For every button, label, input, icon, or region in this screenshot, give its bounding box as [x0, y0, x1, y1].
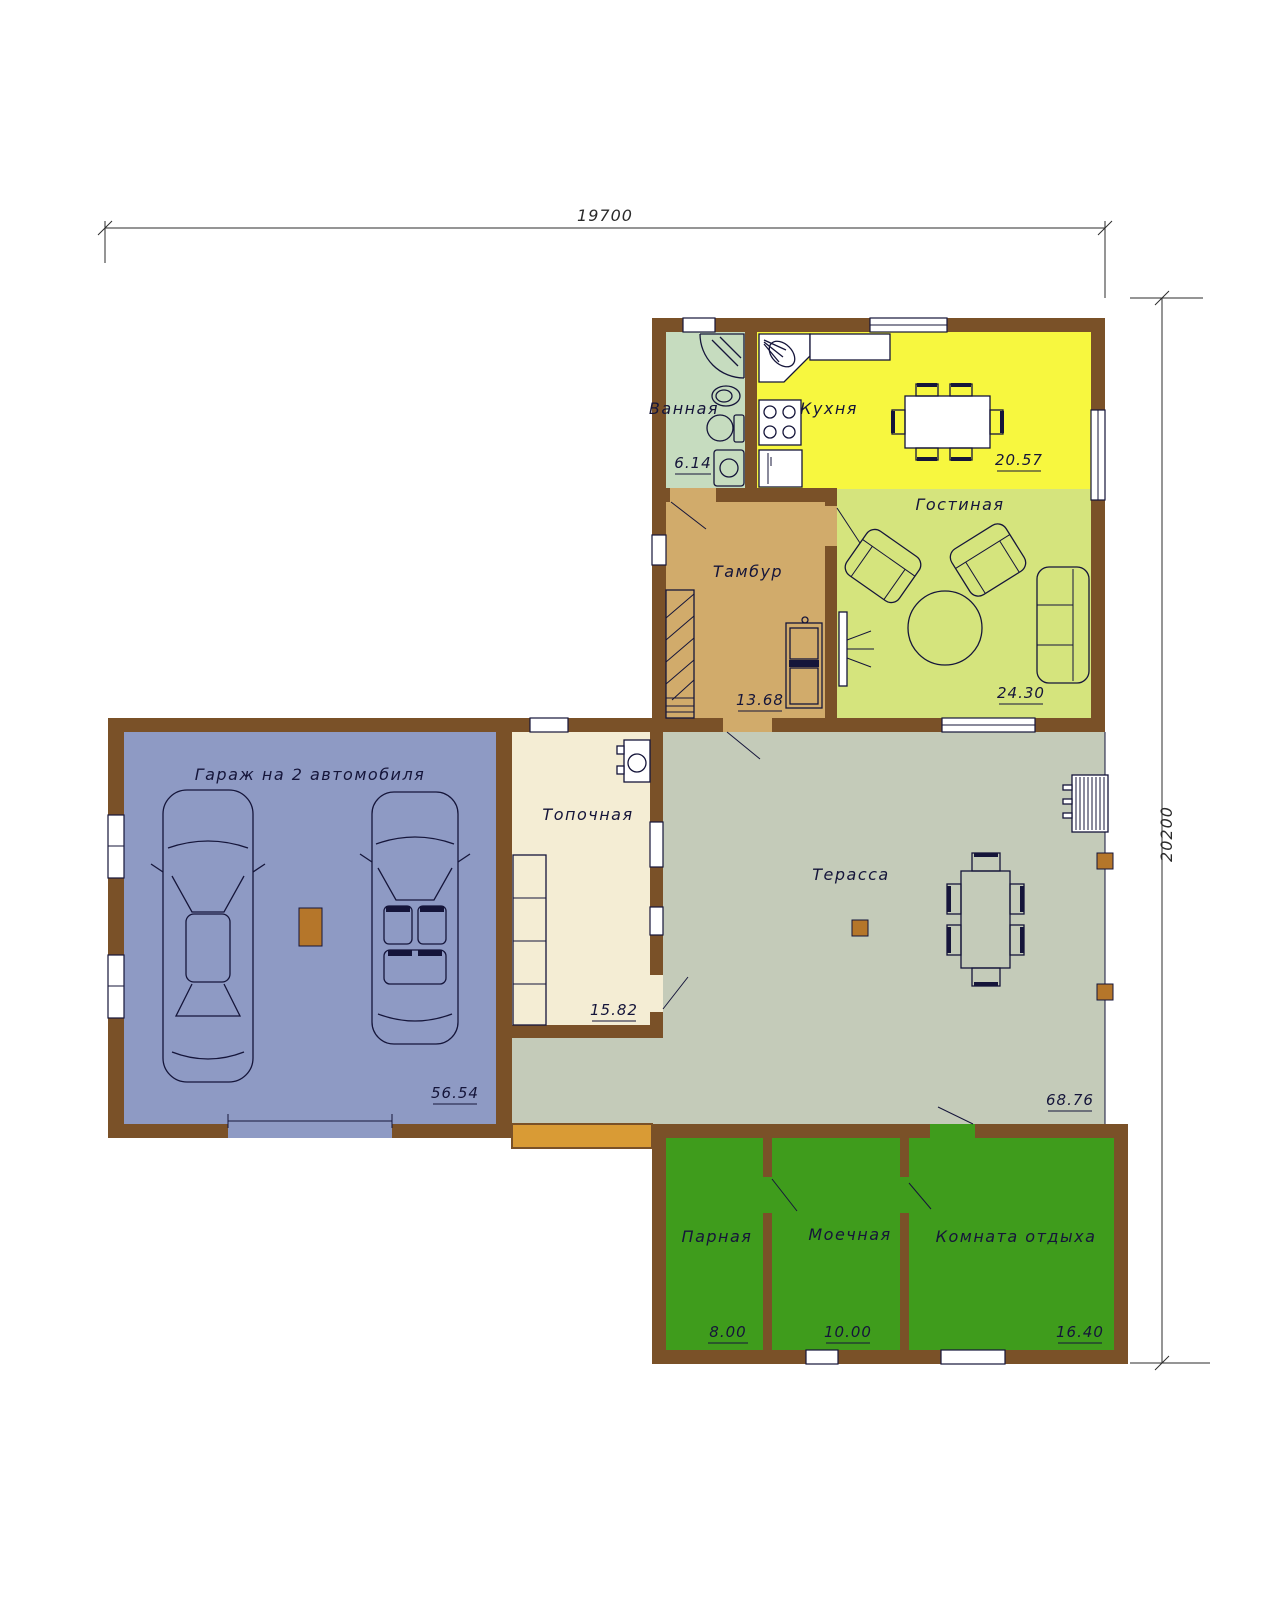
dimension-top: 19700	[98, 206, 1112, 298]
floor-plan-canvas: 19700 20200 Ванная 6.14 Кухня 20.57 Гост…	[0, 0, 1280, 1600]
room-washing-floor	[772, 1138, 900, 1350]
room-label-boiler: Топочная	[542, 805, 633, 824]
wall-sauna-top	[652, 1124, 1128, 1138]
room-label-living: Гостиная	[915, 495, 1004, 514]
garage-gate-opening	[228, 1124, 392, 1138]
door-gap-steam-washing	[763, 1177, 772, 1213]
room-area-rest: 16.40	[1056, 1323, 1104, 1341]
room-label-vestibule: Тамбур	[713, 562, 783, 581]
room-floors	[124, 332, 1114, 1350]
room-terrace-floor-ext	[512, 1038, 663, 1124]
garage-post	[299, 908, 322, 946]
wall-washing-rest	[900, 1138, 909, 1350]
kitchen-counter	[810, 334, 890, 360]
room-area-steam: 8.00	[709, 1323, 746, 1341]
room-vestibule-floor	[666, 502, 825, 718]
dimension-height-label: 20200	[1157, 806, 1176, 862]
door-gap-vestibule-living	[825, 506, 837, 546]
door-gap-bathroom	[670, 488, 716, 502]
door-gap-boiler-terrace	[650, 975, 663, 1012]
wall-main-right	[1091, 318, 1105, 732]
terrace-edge-post-1	[1097, 853, 1113, 869]
room-area-boiler: 15.82	[590, 1001, 638, 1019]
wall-steam-washing	[763, 1138, 772, 1350]
room-area-living: 24.30	[997, 684, 1045, 702]
room-terrace-floor	[663, 732, 1105, 1124]
stove-icon	[759, 400, 801, 445]
window-washing-bottom	[806, 1350, 838, 1364]
floor-plan-drawing: 19700 20200 Ванная 6.14 Кухня 20.57 Гост…	[0, 0, 1280, 1600]
wall-sauna-right	[1114, 1124, 1128, 1364]
room-living-floor	[837, 489, 1091, 718]
terrace-step	[512, 1124, 652, 1148]
dimension-width-label: 19700	[577, 206, 633, 225]
room-area-bathroom: 6.14	[674, 454, 711, 472]
wall-garage-right	[496, 718, 512, 1138]
kitchen-table	[892, 384, 1003, 460]
room-label-garage: Гараж на 2 автомобиля	[195, 765, 426, 784]
wall-garage-left	[108, 718, 124, 1138]
wall-boiler-bottom	[496, 1025, 663, 1038]
terrace-edge-post-2	[1097, 984, 1113, 1000]
room-area-vestibule: 13.68	[736, 691, 784, 709]
wall-bathroom-kitchen	[745, 332, 757, 488]
room-area-garage: 56.54	[431, 1084, 479, 1102]
room-label-rest: Комната отдыха	[936, 1227, 1097, 1246]
terrace-post	[852, 920, 868, 936]
fridge-icon	[759, 450, 802, 487]
room-label-bathroom: Ванная	[649, 399, 719, 418]
room-area-terrace: 68.76	[1046, 1091, 1094, 1109]
door-gap-washing-rest	[900, 1177, 909, 1213]
window-vestibule-left	[652, 535, 666, 565]
wall-garage-boiler-top	[108, 718, 666, 732]
window-bathroom-top	[683, 318, 715, 332]
room-label-terrace: Терасса	[812, 865, 889, 884]
window-boiler-right-1	[650, 822, 663, 867]
room-label-washing: Моечная	[808, 1225, 891, 1244]
wall-sauna-bottom	[652, 1350, 1128, 1364]
room-label-kitchen: Кухня	[800, 399, 858, 418]
window-rest-bottom	[941, 1350, 1005, 1364]
window-boiler-top	[530, 718, 568, 732]
room-area-washing: 10.00	[824, 1323, 872, 1341]
door-gap-vestibule-terrace	[723, 718, 772, 732]
door-gap-terrace-rest	[930, 1124, 975, 1138]
room-label-steam: Парная	[682, 1227, 753, 1246]
wall-sauna-left	[652, 1124, 666, 1364]
wall-main-bottom	[652, 718, 1105, 732]
dimension-right: 20200	[1130, 291, 1210, 1370]
room-area-kitchen: 20.57	[995, 451, 1043, 469]
wall-main-left	[652, 318, 666, 732]
window-boiler-right-2	[650, 907, 663, 935]
